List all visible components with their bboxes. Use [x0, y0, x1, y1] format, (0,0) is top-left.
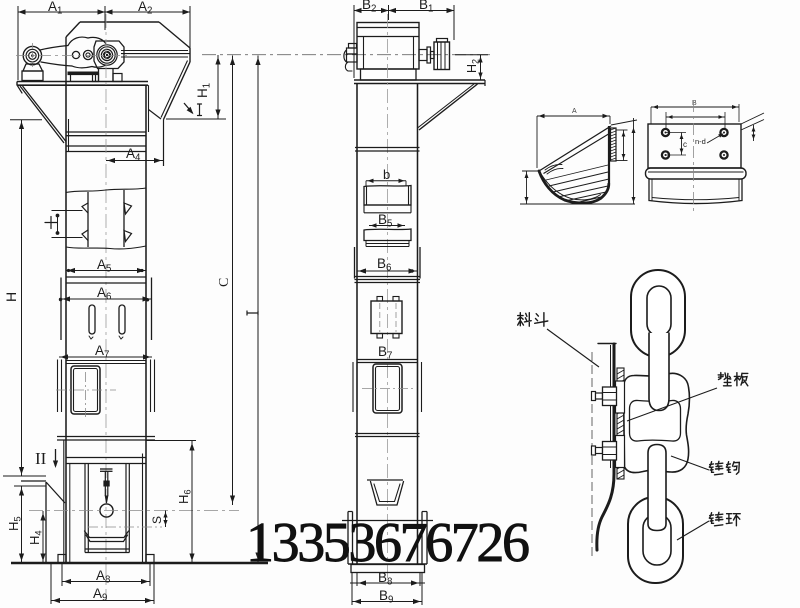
svg-text:A9: A9: [93, 586, 107, 604]
svg-text:H4: H4: [27, 530, 44, 545]
svg-text:B2: B2: [362, 0, 376, 15]
svg-text:B7: B7: [378, 344, 392, 362]
svg-text:B5: B5: [378, 212, 392, 230]
svg-text:n-d: n-d: [695, 137, 706, 146]
svg-text:H6: H6: [176, 489, 193, 504]
svg-text:c: c: [683, 140, 687, 149]
svg-text:H5: H5: [6, 516, 23, 531]
svg-text:B1: B1: [419, 0, 433, 15]
svg-text:A1: A1: [48, 0, 62, 17]
svg-text:13353676726: 13353676726: [246, 512, 529, 574]
svg-text:A6: A6: [97, 285, 111, 303]
svg-text:A7: A7: [95, 343, 109, 361]
svg-text:S: S: [150, 516, 164, 524]
svg-text:II: II: [35, 449, 47, 468]
svg-text:A4: A4: [126, 146, 141, 164]
svg-text:B9: B9: [379, 588, 393, 606]
svg-text:C: C: [217, 278, 232, 287]
svg-text:A: A: [572, 108, 577, 115]
svg-text:A8: A8: [96, 568, 110, 586]
svg-text:A5: A5: [97, 257, 111, 275]
svg-text:H: H: [3, 292, 19, 302]
svg-text:A2: A2: [138, 0, 152, 17]
svg-text:H2: H2: [465, 59, 481, 73]
svg-text:b: b: [383, 167, 390, 182]
svg-text:H1: H1: [195, 83, 213, 98]
svg-text:B: B: [692, 100, 697, 107]
